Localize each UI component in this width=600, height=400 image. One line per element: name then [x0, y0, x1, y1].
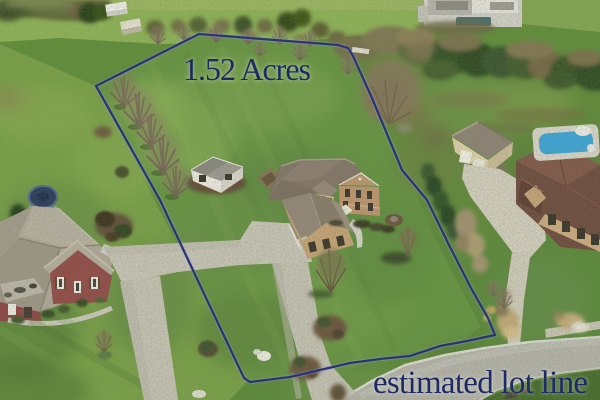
svg-text:estimated lot line: estimated lot line — [373, 365, 588, 400]
svg-text:1.52 Acres: 1.52 Acres — [183, 51, 311, 87]
